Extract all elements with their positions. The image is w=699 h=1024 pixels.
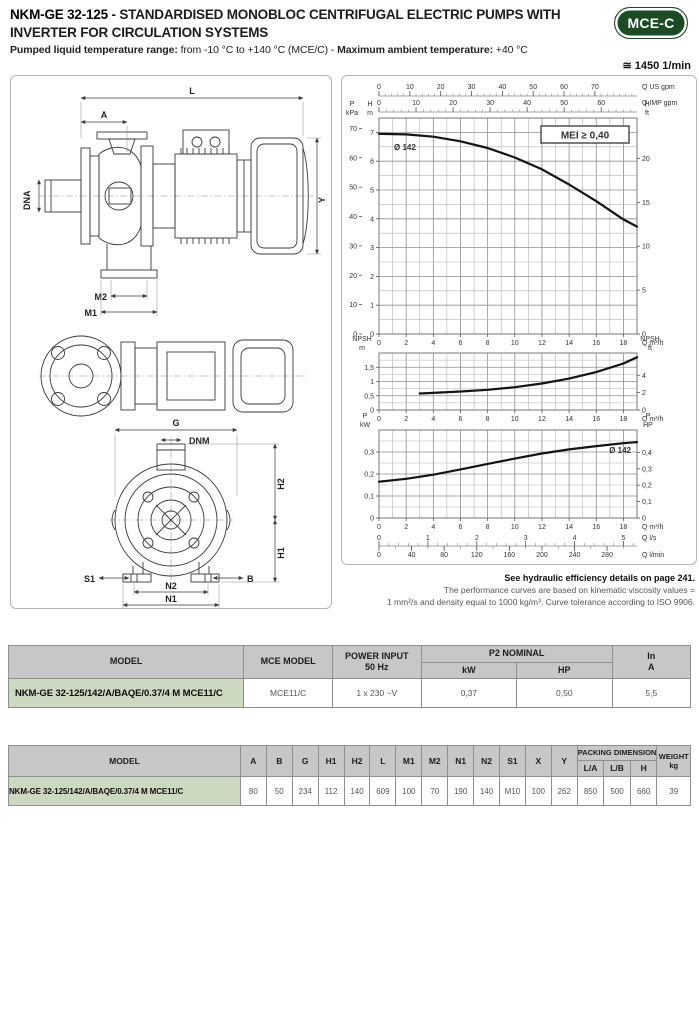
- bottom-scale-title: Q l/s: [642, 535, 657, 542]
- dim-n1-cell: 190: [448, 777, 474, 806]
- dim-H1: H1: [276, 547, 286, 559]
- dim-N2: N2: [165, 581, 177, 591]
- axis-label: 30: [349, 243, 357, 250]
- dim-h1-cell: 112: [318, 777, 344, 806]
- axis-label: 8: [486, 416, 490, 423]
- dim-m2-cell: 70: [422, 777, 448, 806]
- dim-b-cell: 50: [266, 777, 292, 806]
- charts-column: 0123456701020304050607005101520024681012…: [341, 75, 697, 608]
- dim-H2: H2: [276, 478, 286, 490]
- axis-label: 2: [642, 390, 646, 397]
- axis-label: HP: [643, 422, 653, 429]
- top-scale-title: Q US gpm: [642, 84, 675, 91]
- col-header-packing-h: H: [630, 761, 657, 777]
- axis-label: kPa: [346, 110, 358, 117]
- axis-label: 70: [349, 126, 357, 133]
- axis-label: 0: [642, 516, 646, 523]
- col-header-model: MODEL: [9, 746, 241, 777]
- axis-label: 10: [349, 302, 357, 309]
- axis-label: 12: [538, 416, 546, 423]
- axis-label: 4: [370, 216, 374, 223]
- dim-S1: S1: [84, 574, 95, 584]
- model-cell: NKM-GE 32-125/142/A/BAQE/0.37/4 M MCE11/…: [9, 777, 241, 806]
- col-header-weight: WEIGHT kg: [657, 746, 691, 777]
- col-header-dim-s1: S1: [499, 746, 525, 777]
- axis-label: 60: [597, 100, 605, 107]
- axis-label: 0: [377, 84, 381, 91]
- model-name: NKM-GE 32-125: [10, 7, 108, 22]
- weight-cell: 39: [657, 777, 691, 806]
- axis-label: 0,2: [364, 472, 374, 479]
- chart-notes: See hydraulic efficiency details on page…: [341, 572, 697, 608]
- performance-charts: 0123456701020304050607005101520024681012…: [342, 76, 696, 564]
- axis-label: 5: [642, 288, 646, 295]
- col-header-dim-y: Y: [551, 746, 577, 777]
- axis-label: 14: [565, 416, 573, 423]
- dim-x-cell: 100: [525, 777, 551, 806]
- col-header-packing: PACKING DIMENSIONS: [577, 746, 657, 761]
- axis-label: 60: [560, 84, 568, 91]
- axis-label: 16: [592, 340, 600, 347]
- axis-label: 3: [524, 535, 528, 542]
- axis-label: 2: [404, 340, 408, 347]
- table-row: NKM-GE 32-125/142/A/BAQE/0.37/4 M MCE11/…: [9, 679, 691, 708]
- axis-label: 80: [440, 552, 448, 559]
- axis-label: 2: [404, 524, 408, 531]
- axis-label: 4: [573, 535, 577, 542]
- axis-label: 5: [370, 188, 374, 195]
- axis-label: 0: [377, 340, 381, 347]
- axis-label: ft: [648, 345, 652, 352]
- curve-label: Ø 142: [394, 143, 416, 152]
- dim-n2-cell: 140: [474, 777, 500, 806]
- curve-head: [379, 134, 637, 227]
- axis-label: 10: [412, 100, 420, 107]
- col-header-mce-model: MCE MODEL: [244, 646, 333, 679]
- col-header-dim-a: A: [240, 746, 266, 777]
- dimensional-drawing-panel: L A Y DNA M2 M1: [10, 75, 332, 609]
- axis-label: 20: [449, 100, 457, 107]
- page-title: NKM-GE 32-125 - STANDARDISED MONOBLOC CE…: [10, 6, 600, 41]
- axis-label: 0,2: [642, 483, 652, 490]
- axis-label: 50: [349, 185, 357, 192]
- axis-label: 8: [486, 340, 490, 347]
- curve-label: Ø 142: [609, 446, 631, 455]
- dim-DNM: DNM: [189, 436, 210, 446]
- in-label: In: [616, 651, 687, 663]
- axis-label: m: [359, 345, 365, 352]
- col-header-model: MODEL: [9, 646, 244, 679]
- axis-label: 18: [620, 416, 628, 423]
- axis-label: 0: [377, 535, 381, 542]
- axis-label: 40: [349, 214, 357, 221]
- col-header-dim-n1: N1: [448, 746, 474, 777]
- dim-m1-cell: 100: [396, 777, 422, 806]
- dim-L: L: [189, 86, 195, 96]
- p2-kw-cell: 0,37: [421, 679, 516, 708]
- power-input-freq: 50 Hz: [336, 662, 418, 674]
- axis-label: 10: [511, 524, 519, 531]
- axis-label: 4: [642, 373, 646, 380]
- axis-label: 40: [408, 552, 416, 559]
- axis-label: 5: [621, 535, 625, 542]
- col-header-dim-b: B: [266, 746, 292, 777]
- dim-a-cell: 80: [240, 777, 266, 806]
- axis-label: 12: [538, 524, 546, 531]
- mce-model-cell: MCE11/C: [244, 679, 333, 708]
- axis-label: 18: [620, 524, 628, 531]
- in-a-cell: 5,5: [612, 679, 690, 708]
- x-axis-unit: Q m³/h: [642, 524, 663, 531]
- col-header-power-input: POWER INPUT 50 Hz: [332, 646, 421, 679]
- axis-label: 16: [592, 524, 600, 531]
- rotation-speed: ≅ 1450 1/min: [0, 59, 699, 72]
- power-input-label: POWER INPUT: [336, 651, 418, 663]
- axis-label: 3: [370, 245, 374, 252]
- axis-label: 10: [406, 84, 414, 91]
- axis-label: 60: [349, 155, 357, 162]
- dim-M1: M1: [84, 308, 97, 318]
- table-row: NKM-GE 32-125/142/A/BAQE/0.37/4 M MCE11/…: [9, 777, 691, 806]
- dim-g-cell: 234: [292, 777, 318, 806]
- axis-label: 70: [591, 84, 599, 91]
- viscosity-note-line1: The performance curves are based on kine…: [341, 585, 695, 597]
- axis-label: 40: [498, 84, 506, 91]
- title-separator: -: [108, 7, 119, 22]
- axis-label: 0: [377, 416, 381, 423]
- axis-label: 0: [370, 408, 374, 415]
- viscosity-note-line2: 1 mm²/s and density equal to 1000 kg/m³.…: [341, 597, 695, 609]
- col-header-dim-x: X: [525, 746, 551, 777]
- axis-label: 14: [565, 524, 573, 531]
- packing-lb-cell: 500: [604, 777, 631, 806]
- axis-label: 1: [426, 535, 430, 542]
- col-header-dim-m2: M2: [422, 746, 448, 777]
- temperature-range-line: Pumped liquid temperature range: from -1…: [0, 41, 699, 56]
- power-input-cell: 1 x 230 ~V: [332, 679, 421, 708]
- axis-label: 0: [377, 552, 381, 559]
- axis-label: 0,3: [364, 450, 374, 457]
- axis-label: 15: [642, 200, 650, 207]
- col-header-dim-m1: M1: [396, 746, 422, 777]
- axis-label: 4: [431, 340, 435, 347]
- axis-label: 6: [459, 340, 463, 347]
- front-view: G DNM: [84, 418, 286, 608]
- col-header-dim-h1: H1: [318, 746, 344, 777]
- packing-la-cell: 850: [577, 777, 604, 806]
- axis-label: 30: [486, 100, 494, 107]
- dim-Y: Y: [317, 197, 327, 203]
- dim-M2: M2: [94, 292, 107, 302]
- axis-label: 0: [377, 524, 381, 531]
- dim-B: B: [247, 574, 254, 584]
- axis-label: 280: [601, 552, 613, 559]
- axis-label: 7: [370, 130, 374, 137]
- col-header-kw: kW: [421, 662, 516, 679]
- p2-hp-cell: 0,50: [517, 679, 612, 708]
- top-view: [39, 336, 309, 416]
- content-row: L A Y DNA M2 M1: [10, 75, 691, 609]
- col-header-dim-g: G: [292, 746, 318, 777]
- ambient-temp-label: Maximum ambient temperature:: [337, 44, 493, 56]
- axis-label: 6: [370, 159, 374, 166]
- axis-label: 2: [404, 416, 408, 423]
- col-header-in: In A: [612, 646, 690, 679]
- col-header-dim-h2: H2: [344, 746, 370, 777]
- col-header-p2-nominal: P2 NOMINAL: [421, 646, 612, 663]
- bottom-scale-title: Q l/min: [642, 552, 664, 559]
- axis-label: 20: [437, 84, 445, 91]
- col-header-dim-l: L: [370, 746, 396, 777]
- mei-label: MEI ≥ 0,40: [561, 131, 610, 142]
- axis-label: 10: [511, 340, 519, 347]
- axis-label: NPSH: [640, 336, 659, 343]
- col-header-packing-la: L/A: [577, 761, 604, 777]
- datasheet-page: { "header": { "model": "NKM-GE 32-125", …: [0, 0, 699, 1024]
- axis-label: 0,3: [642, 466, 652, 473]
- packing-h-cell: 660: [630, 777, 657, 806]
- axis-label: 30: [468, 84, 476, 91]
- axis-label: m: [367, 110, 373, 117]
- axis-label: 0: [377, 100, 381, 107]
- axis-label: 120: [471, 552, 483, 559]
- dim-A: A: [101, 110, 108, 120]
- page-header: NKM-GE 32-125 - STANDARDISED MONOBLOC CE…: [0, 0, 699, 41]
- axis-label: 1: [370, 379, 374, 386]
- plot-border: [379, 118, 637, 334]
- electrical-data-table: MODEL MCE MODEL POWER INPUT 50 Hz P2 NOM…: [8, 645, 691, 708]
- axis-label: ft: [645, 110, 649, 117]
- in-unit: A: [616, 662, 687, 674]
- liquid-temp-value: from -10 °C to +140 °C (MCE/C) -: [178, 44, 337, 56]
- col-header-dim-n2: N2: [474, 746, 500, 777]
- axis-label: 10: [511, 416, 519, 423]
- col-header-hp: HP: [517, 662, 612, 679]
- pump-drawing: L A Y DNA M2 M1: [11, 76, 331, 608]
- dim-G: G: [172, 418, 179, 428]
- axis-label: 6: [459, 524, 463, 531]
- dim-h2-cell: 140: [344, 777, 370, 806]
- model-cell: NKM-GE 32-125/142/A/BAQE/0.37/4 M MCE11/…: [9, 679, 244, 708]
- axis-label: 40: [523, 100, 531, 107]
- top-scale-title: Q IMP gpm: [642, 100, 677, 107]
- weight-label: WEIGHT: [657, 752, 690, 762]
- axis-label: 4: [431, 416, 435, 423]
- axis-label: 18: [620, 340, 628, 347]
- axis-label: 0,5: [364, 393, 374, 400]
- axis-label: 1,5: [364, 365, 374, 372]
- col-header-packing-lb: L/B: [604, 761, 631, 777]
- liquid-temp-label: Pumped liquid temperature range:: [10, 44, 178, 56]
- curve-power: [379, 442, 637, 482]
- axis-label: 0: [370, 516, 374, 523]
- axis-label: 160: [504, 552, 516, 559]
- axis-label: H: [367, 101, 372, 108]
- dim-y-cell: 262: [551, 777, 577, 806]
- axis-label: 240: [569, 552, 581, 559]
- axis-label: 16: [592, 416, 600, 423]
- dimensions-table: MODEL A B G H1 H2 L M1 M2 N1 N2 S1 X Y P…: [8, 745, 691, 806]
- mce-c-badge: MCE-C: [614, 7, 688, 39]
- axis-label: 20: [642, 156, 650, 163]
- dim-N1: N1: [165, 594, 177, 604]
- axis-label: 50: [529, 84, 537, 91]
- axis-label: 0,1: [642, 499, 652, 506]
- axis-label: 10: [642, 244, 650, 251]
- axis-label: 14: [565, 340, 573, 347]
- axis-label: P: [646, 413, 651, 420]
- ambient-temp-value: +40 °C: [493, 44, 528, 56]
- axis-label: 200: [536, 552, 548, 559]
- axis-label: 4: [431, 524, 435, 531]
- efficiency-note: See hydraulic efficiency details on page…: [341, 572, 695, 585]
- dim-DNA: DNA: [22, 190, 32, 210]
- side-view: L A Y DNA M2 M1: [22, 86, 327, 318]
- dim-l-cell: 609: [370, 777, 396, 806]
- performance-charts-panel: 0123456701020304050607005101520024681012…: [341, 75, 697, 565]
- axis-label: 0,4: [642, 450, 652, 457]
- axis-label: NPSH: [352, 336, 371, 343]
- axis-label: 50: [560, 100, 568, 107]
- axis-label: P: [363, 413, 368, 420]
- axis-label: kW: [360, 422, 371, 429]
- axis-label: 0,1: [364, 494, 374, 501]
- axis-label: 2: [475, 535, 479, 542]
- axis-label: 6: [459, 416, 463, 423]
- axis-label: 20: [349, 273, 357, 280]
- axis-label: 2: [370, 274, 374, 281]
- dim-s1-cell: M10: [499, 777, 525, 806]
- axis-label: 1: [370, 303, 374, 310]
- axis-label: 8: [486, 524, 490, 531]
- axis-label: 12: [538, 340, 546, 347]
- weight-unit: kg: [657, 761, 690, 771]
- axis-label: P: [350, 101, 355, 108]
